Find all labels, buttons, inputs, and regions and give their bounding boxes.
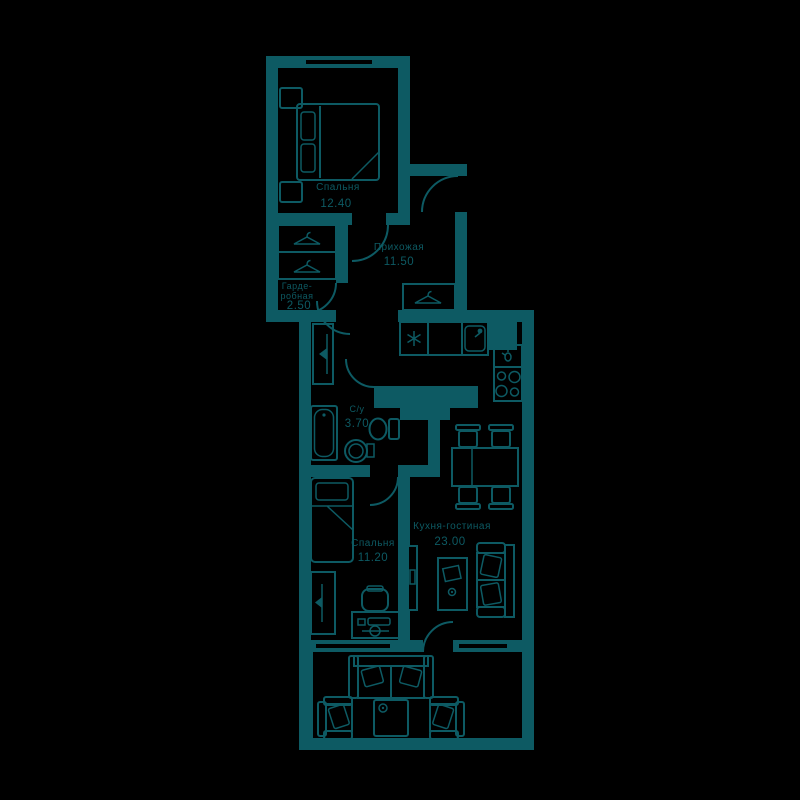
label-hallway-name: Прихожая (374, 242, 424, 253)
floor-plan: Спальня 12.40 Гарде- робная 2.50 Прихожа… (0, 0, 800, 800)
balcony-table-icon (374, 700, 408, 736)
bathtub-icon (311, 406, 337, 460)
stove-icon (494, 367, 522, 401)
balcony-armchair-icon (318, 697, 352, 739)
double-bed-icon (297, 104, 379, 180)
window-living-room (459, 640, 507, 652)
coffee-table-icon (438, 558, 467, 610)
dining-chair-icon (456, 487, 480, 509)
window-bedroom-2 (316, 640, 390, 652)
fridge-icon (400, 322, 428, 355)
nightstand-icon (280, 182, 302, 202)
label-bedroom-1-name: Спальня (316, 182, 360, 193)
hall-closet-icon (403, 284, 455, 310)
door-arc-entry (422, 176, 458, 212)
dining-table-icon (452, 448, 518, 486)
label-bedroom-2-area: 11.20 (358, 552, 388, 564)
room-bedroom-1: Спальня 12.40 (280, 88, 379, 210)
washing-machine-icon (345, 440, 374, 462)
label-bathroom-area: 3.70 (345, 418, 369, 430)
sink-icon (462, 322, 488, 355)
label-bathroom-name: С/у (350, 404, 365, 414)
label-bedroom-1-area: 12.40 (320, 198, 351, 210)
dining-chair-icon (489, 425, 513, 447)
door-arc-bedroom-2 (370, 477, 398, 505)
label-kitchen-living-name: Кухня-гостиная (413, 521, 491, 532)
room-wardrobe: Гарде- робная 2.50 (278, 225, 336, 312)
balcony (318, 656, 464, 739)
closet-icon (278, 225, 336, 279)
label-hallway-area: 11.50 (384, 256, 414, 268)
desk-icon (352, 612, 399, 638)
label-bedroom-2-name: Спальня (351, 538, 395, 549)
desk-chair-icon (362, 586, 388, 611)
dining-chair-icon (456, 425, 480, 447)
walls (266, 56, 534, 750)
door-arc-balcony (423, 622, 453, 652)
balcony-sofa-icon (349, 656, 433, 698)
kitchen-cabinet-icon (428, 322, 462, 355)
wardrobe-icon (311, 572, 335, 634)
room-bathroom: С/у 3.70 (311, 404, 399, 462)
toilet-icon (370, 419, 400, 440)
single-bed-icon (311, 478, 353, 562)
tv-icon (408, 546, 417, 610)
sofa-icon (477, 543, 514, 617)
label-wardrobe-name-1: Гарде- (282, 281, 312, 291)
door-arc-bathroom (346, 359, 374, 387)
dining-chair-icon (489, 487, 513, 509)
balcony-armchair-icon (430, 697, 464, 739)
room-bedroom-2: Спальня 11.20 (311, 478, 399, 638)
window-bedroom-1 (306, 56, 372, 68)
label-kitchen-living-area: 23.00 (434, 536, 465, 548)
mirror-cabinet-icon (313, 324, 333, 384)
label-wardrobe-area: 2.50 (287, 300, 311, 312)
